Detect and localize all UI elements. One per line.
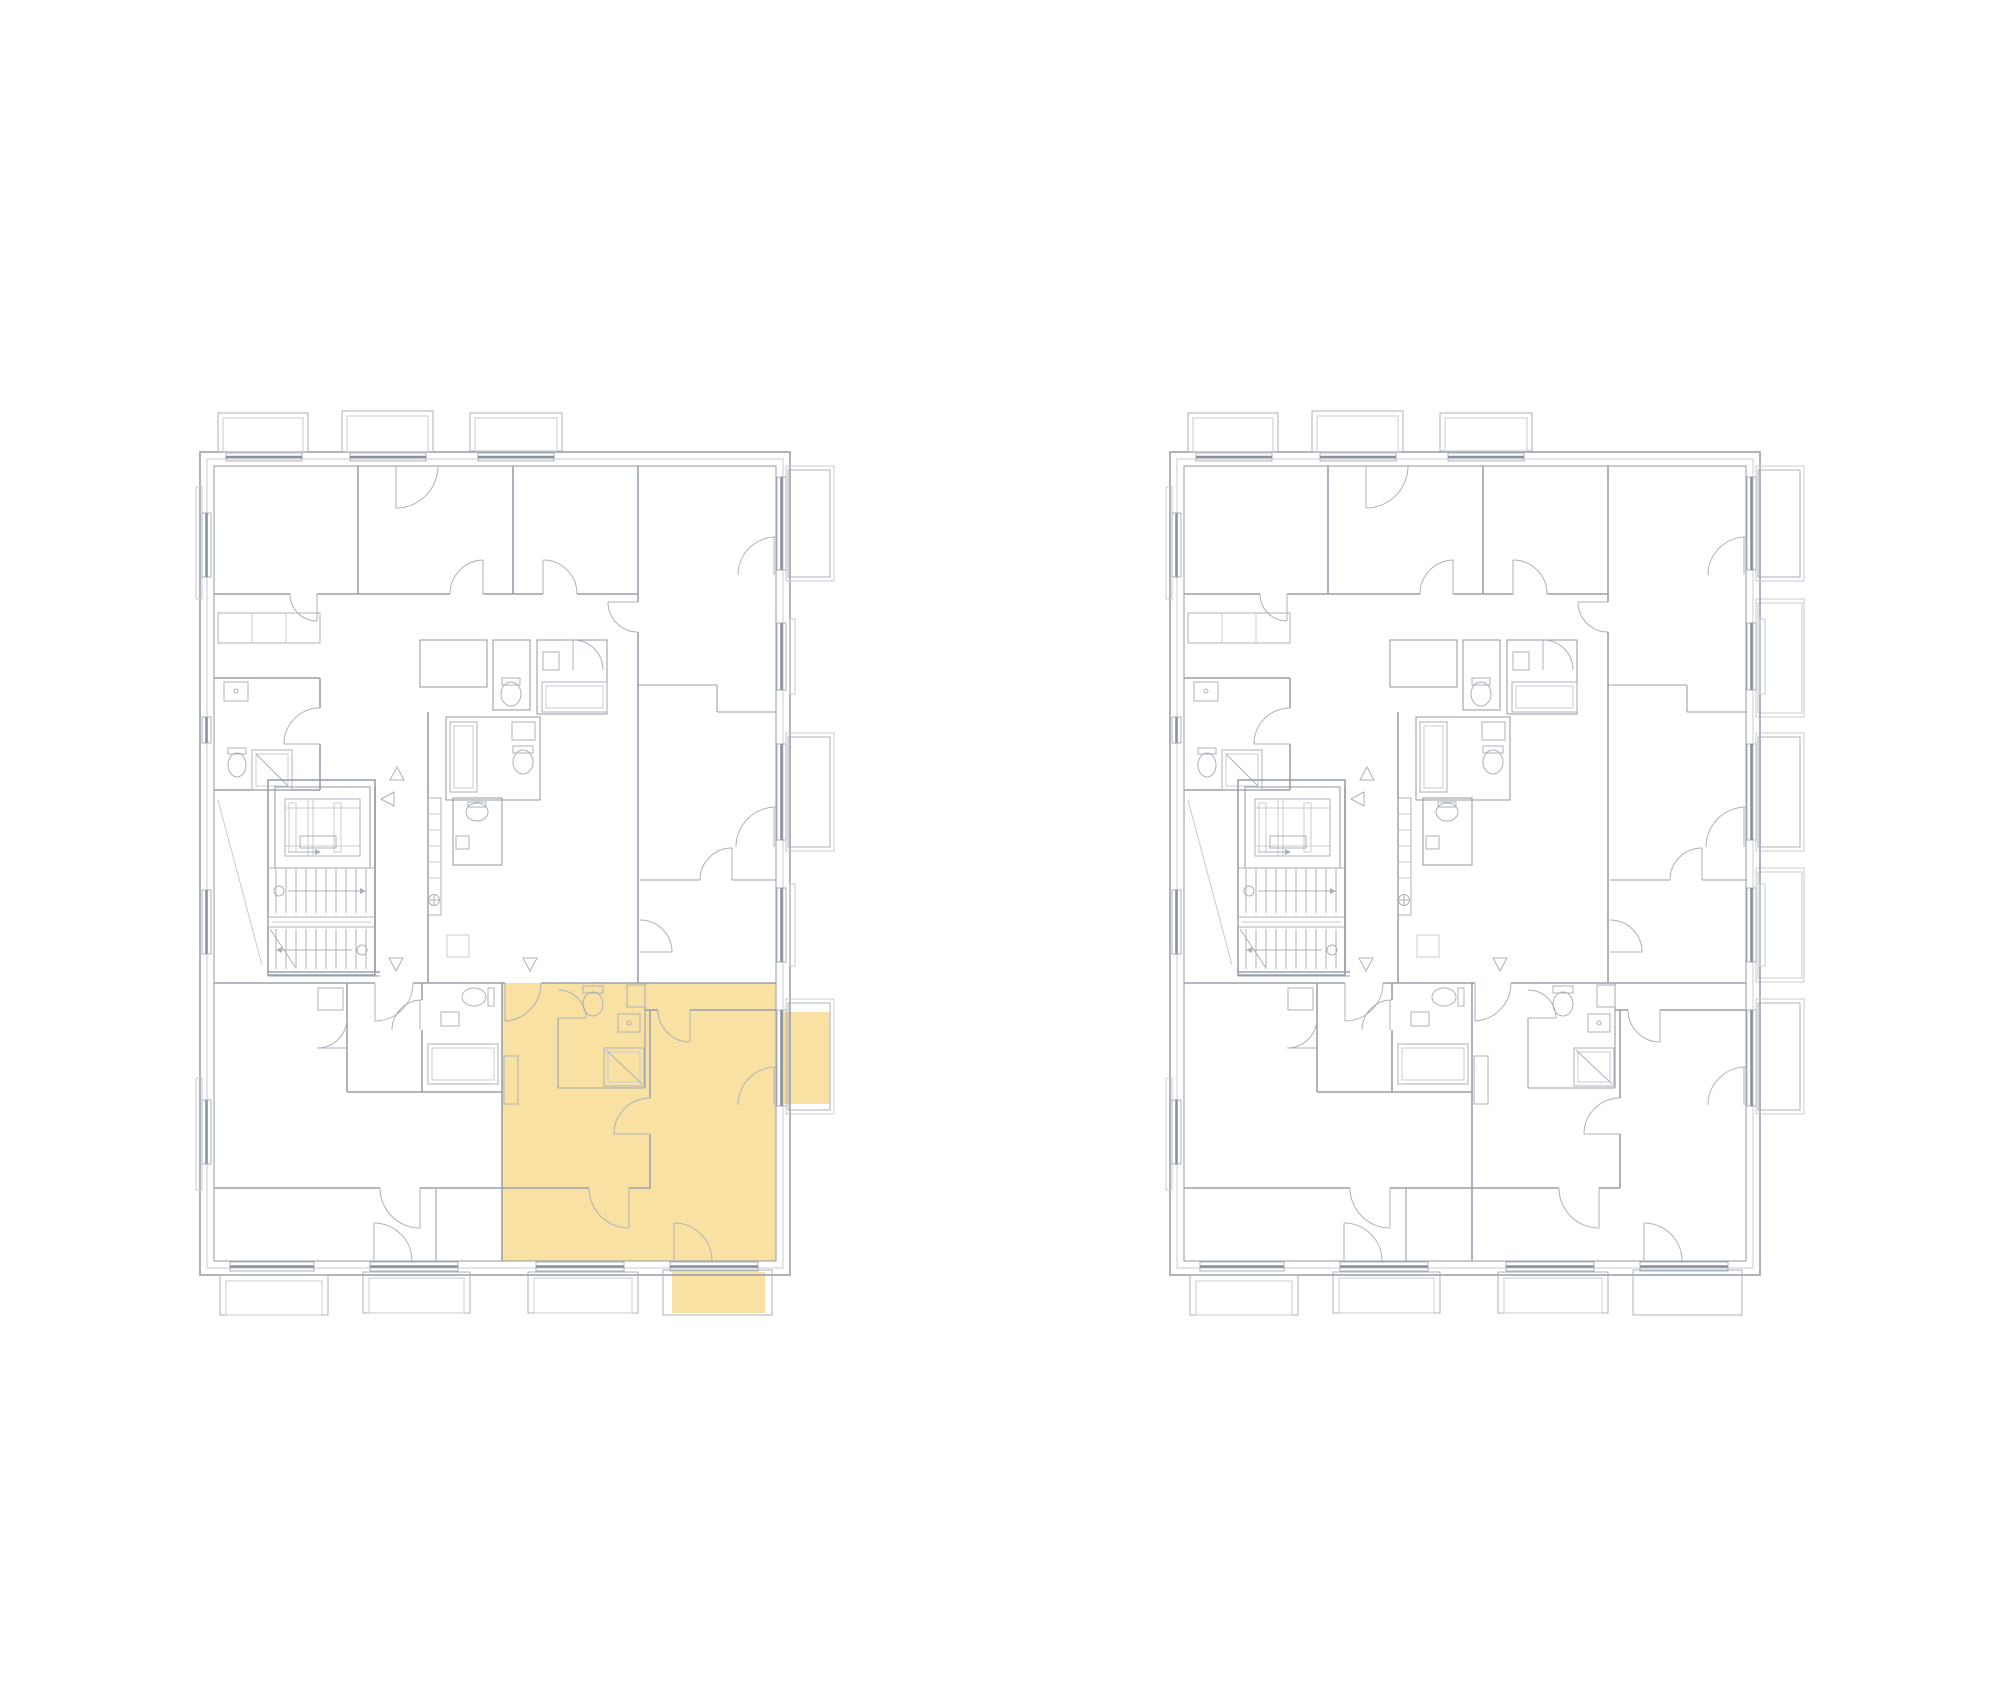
floorplan-page: { "canvas": { "width": 2000, "height": 1… xyxy=(0,0,2000,1700)
floor-plans-canvas xyxy=(0,0,2000,1700)
right-floor-plan xyxy=(1166,411,1804,1315)
left-floor-plan xyxy=(196,411,834,1315)
right-plan-extra-balconies xyxy=(1756,599,1804,982)
floor-plans-svg xyxy=(0,0,2000,1700)
floor-plan-drawing-right xyxy=(1166,411,1804,1315)
